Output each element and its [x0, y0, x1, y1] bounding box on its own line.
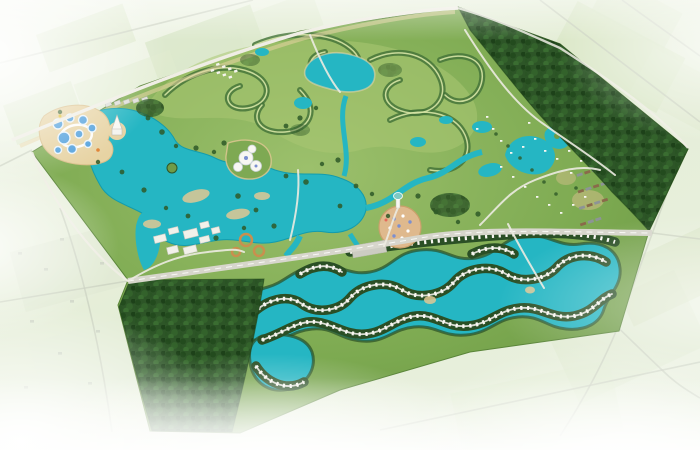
top-pond: [294, 97, 312, 109]
slide-marker-2: [59, 115, 62, 118]
golf-pond-3: [410, 137, 426, 147]
masterplan-render: [0, 0, 700, 450]
golf-pond-1: [255, 48, 269, 56]
lagoon-sand-1: [424, 296, 436, 304]
village-dirt-2: [556, 171, 576, 185]
slide-marker-1: [96, 148, 100, 152]
lagoon-sand-2: [525, 287, 535, 294]
tower-glass-roof: [394, 193, 403, 200]
lake-islet: [167, 163, 177, 173]
resort-lake-3: [472, 121, 492, 133]
golf-pond-2: [439, 116, 453, 124]
scene-canvas: [0, 0, 700, 450]
